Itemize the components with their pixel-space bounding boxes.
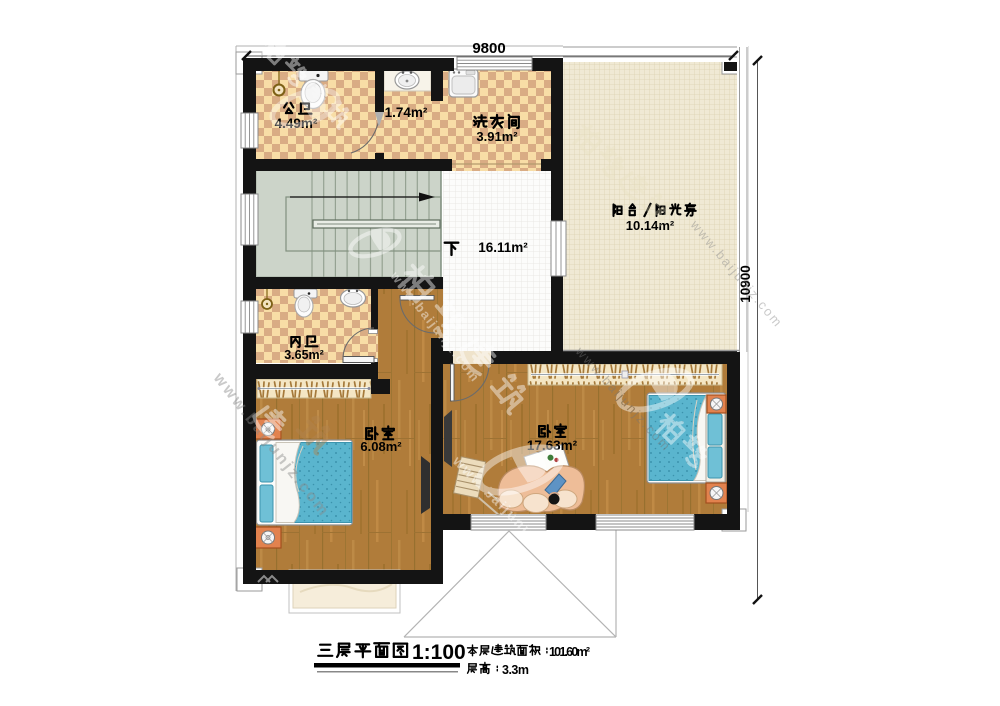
svg-text:16.11m²: 16.11m²: [478, 240, 528, 255]
svg-text:1.74m²: 1.74m²: [385, 105, 428, 120]
svg-text:3.91m²: 3.91m²: [476, 129, 518, 144]
svg-text:9800: 9800: [472, 40, 505, 57]
svg-text:101.60m²: 101.60m²: [549, 645, 590, 659]
svg-text:10.14m²: 10.14m²: [626, 218, 675, 233]
svg-text:6.08m²: 6.08m²: [360, 439, 402, 454]
svg-text:1:100: 1:100: [412, 641, 466, 664]
svg-text:3.3m: 3.3m: [502, 663, 529, 677]
svg-text:3.65m²: 3.65m²: [284, 348, 324, 362]
